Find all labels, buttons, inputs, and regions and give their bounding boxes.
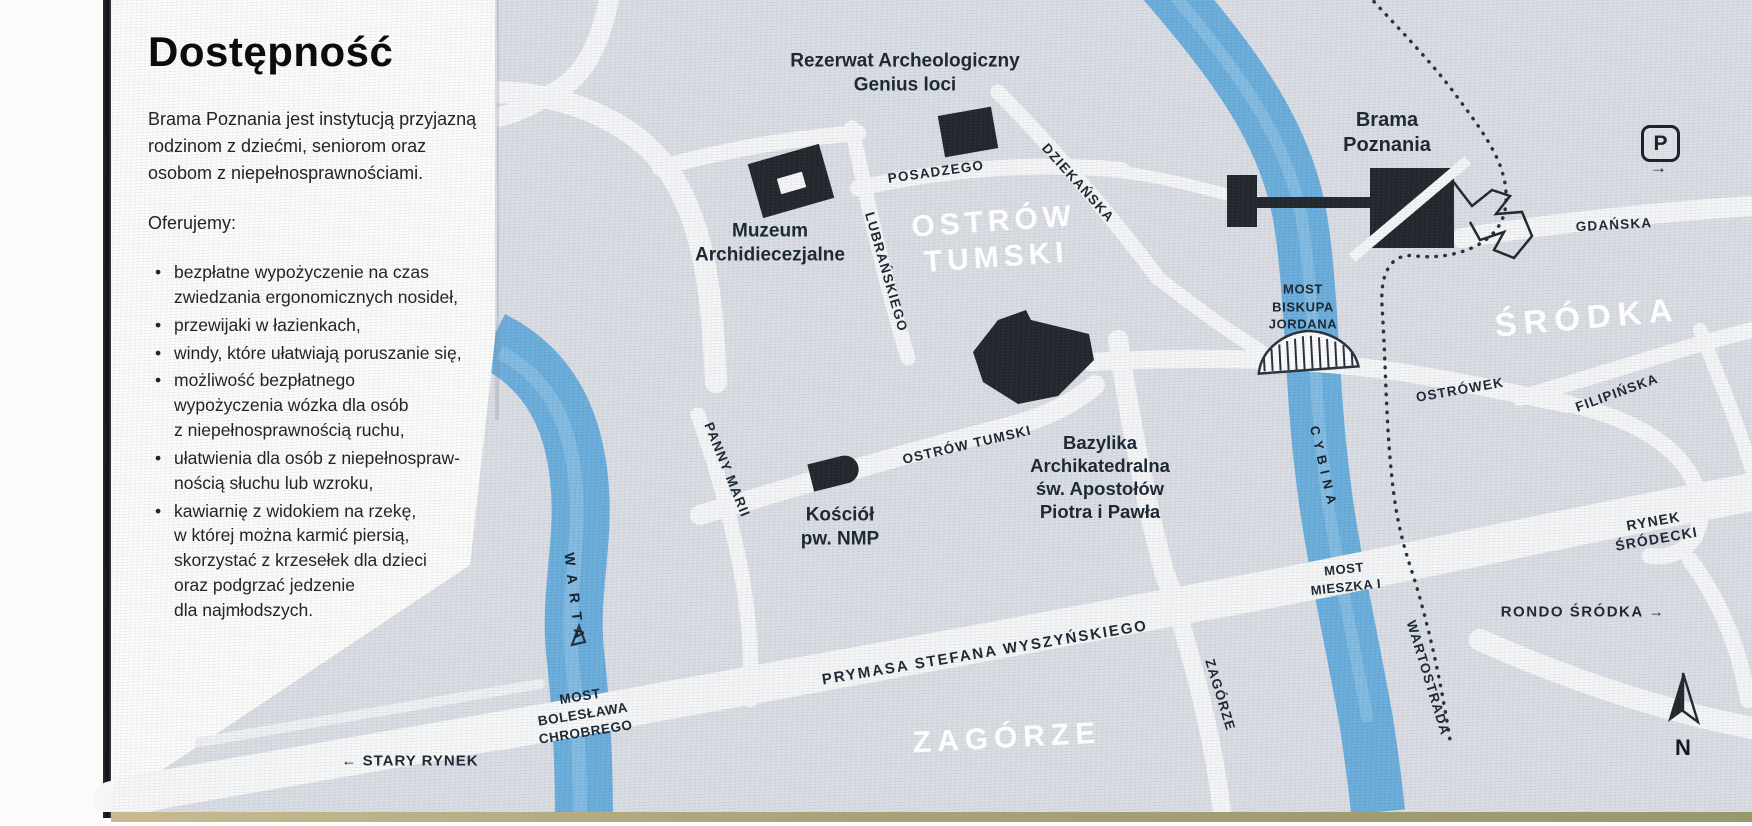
accessibility-panel: Dostępność Brama Poznania jest instytucj…: [148, 28, 484, 626]
list-item: możliwość bezpłatnego wypożyczenia wózka…: [148, 368, 484, 443]
poi-label-kosciol: Kościół pw. NMP: [801, 503, 879, 551]
poi-label-brama-poznania: Brama Poznania: [1343, 108, 1431, 158]
page-title: Dostępność: [148, 28, 484, 76]
poi-label-rezerwat: Rezerwat Archeologiczny Genius loci: [790, 49, 1019, 97]
place-label-rondo-srodka: RONDO ŚRÓDKA →: [1501, 602, 1666, 622]
intro-paragraph: Brama Poznania jest instytucją przyjazną…: [148, 106, 484, 187]
place-label-stary-rynek: ← STARY RYNEK: [341, 751, 478, 771]
parking-icon: P: [1641, 125, 1680, 162]
offer-list: bezpłatne wypożyczenie na czas zwiedzani…: [148, 260, 484, 623]
scanned-brochure-map-page: Dostępność Brama Poznania jest instytucj…: [0, 0, 1752, 826]
bridge-label-mieszka: MOST MIESZKA I: [1308, 557, 1382, 599]
scan-edge-bottom: [111, 812, 1752, 822]
list-item: przewijaki w łazienkach,: [148, 313, 484, 338]
poi-label-muzeum: Muzeum Archidiecezjalne: [695, 219, 845, 267]
list-item: ułatwienia dla osób z niepełnospraw- noś…: [148, 446, 484, 496]
compass-north-label: N: [1675, 735, 1691, 761]
parking-direction-arrow-icon: →: [1650, 158, 1667, 178]
list-item: windy, które ułatwiają poruszanie się,: [148, 341, 484, 366]
poi-label-bazylika: Bazylika Archikatedralna św. Apostołów P…: [1030, 431, 1170, 524]
bridge-label-jordana: MOST BISKUPA JORDANA: [1269, 281, 1337, 334]
parking-letter: P: [1653, 132, 1667, 156]
offer-heading: Oferujemy:: [148, 213, 484, 234]
list-item: bezpłatne wypożyczenie na czas zwiedzani…: [148, 260, 484, 310]
district-label-ostrow-tumski: OSTRÓW TUMSKI: [910, 198, 1080, 281]
list-item: kawiarnię z widokiem na rzekę, w której …: [148, 499, 484, 623]
panel-edge-shadow: [495, 0, 499, 420]
